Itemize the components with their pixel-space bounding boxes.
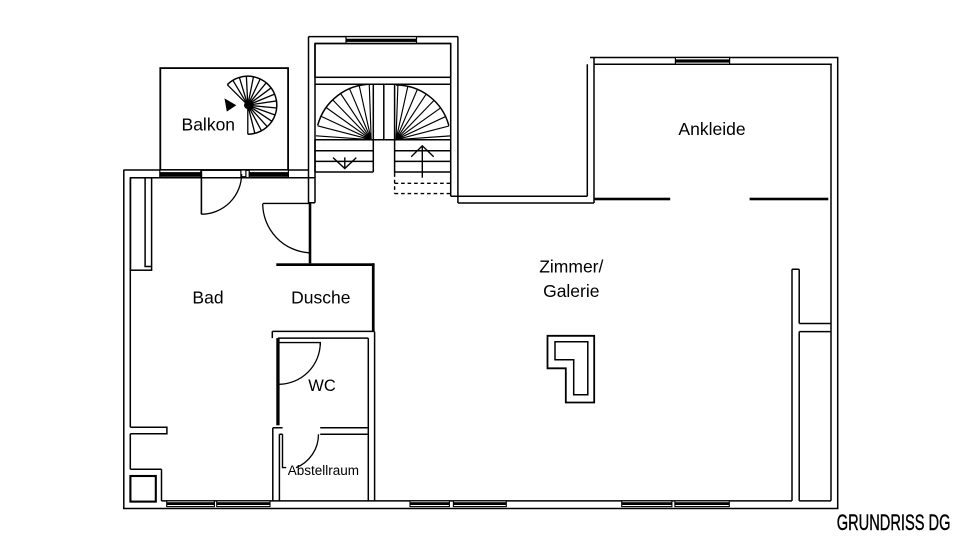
svg-text:WC: WC	[308, 377, 336, 395]
svg-text:Galerie: Galerie	[543, 281, 599, 301]
svg-text:Ankleide: Ankleide	[678, 119, 745, 139]
svg-text:Bad: Bad	[192, 287, 223, 307]
svg-text:Balkon: Balkon	[182, 115, 236, 135]
svg-text:GRUNDRISS DG: GRUNDRISS DG	[837, 510, 951, 535]
svg-text:Dusche: Dusche	[291, 287, 350, 307]
svg-text:Abstellraum: Abstellraum	[288, 463, 359, 478]
svg-text:Zimmer/: Zimmer/	[539, 257, 603, 277]
